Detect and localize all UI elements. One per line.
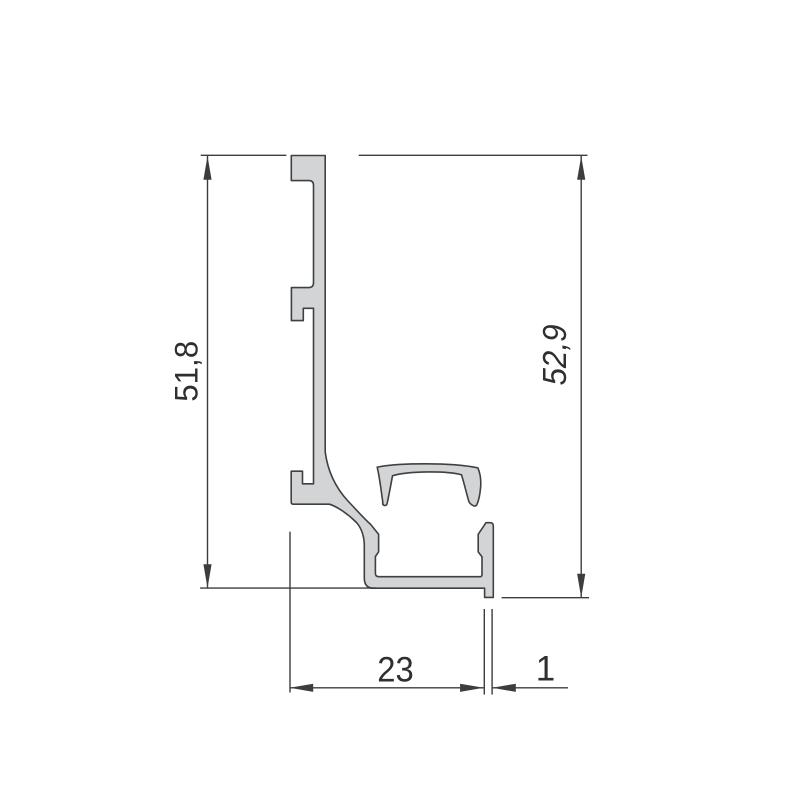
svg-text:23: 23 <box>377 650 414 689</box>
svg-text:1: 1 <box>536 650 555 689</box>
svg-text:51,8: 51,8 <box>169 341 205 402</box>
svg-text:52,9: 52,9 <box>536 325 573 386</box>
